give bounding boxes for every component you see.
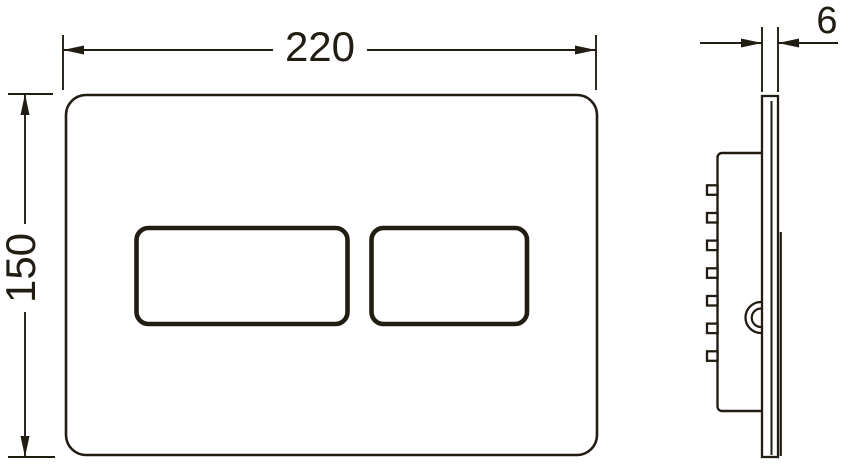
clip — [707, 241, 718, 251]
arrow-right-icon — [575, 46, 596, 55]
width-dimension: 220 — [63, 23, 596, 90]
arrow-right-icon — [741, 39, 762, 48]
height-dimension-label: 150 — [0, 233, 44, 303]
flush-button-large — [137, 228, 348, 324]
clip — [707, 213, 718, 223]
plate-profile — [762, 96, 778, 457]
technical-drawing-canvas: 220 150 — [0, 0, 842, 471]
technical-drawing: 220 150 — [0, 0, 842, 471]
arrow-down-icon — [21, 436, 30, 457]
arrow-up-icon — [21, 94, 30, 115]
actuator-boss-inner — [752, 309, 761, 328]
arrow-left-icon — [63, 46, 84, 55]
height-dimension: 150 — [0, 94, 55, 457]
clip — [707, 324, 718, 334]
clip — [707, 296, 718, 306]
front-view — [66, 95, 597, 455]
clip — [707, 185, 718, 195]
arrow-left-icon — [778, 39, 799, 48]
flush-button-small — [372, 228, 528, 324]
thickness-dimension-label: 6 — [816, 0, 837, 42]
housing-profile — [718, 153, 762, 411]
housing-clips — [707, 185, 718, 360]
actuator-boss-outer — [745, 302, 761, 333]
clip — [707, 351, 718, 361]
width-dimension-label: 220 — [285, 23, 355, 70]
side-view — [707, 96, 781, 457]
clip — [707, 268, 718, 278]
thickness-dimension: 6 — [700, 0, 838, 92]
